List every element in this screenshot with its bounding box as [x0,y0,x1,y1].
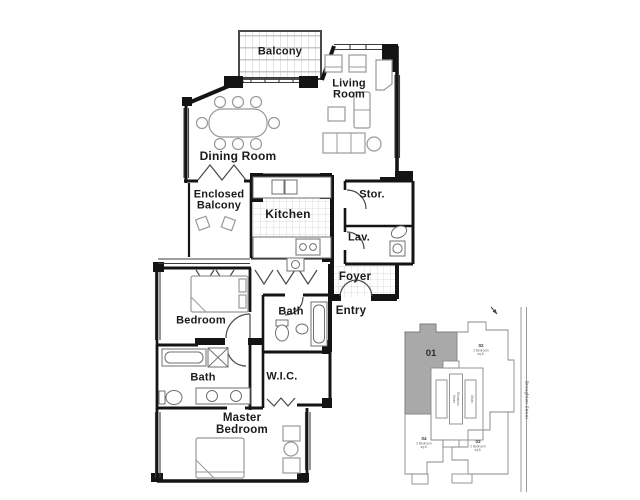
key-plan-unit-03-line2: sq.ft. [475,448,482,452]
furniture-dining [197,97,280,150]
room-label-enclosed-balcony: Enclosed Balcony [182,190,256,213]
room-label-balcony: Balcony [258,46,302,57]
key-plan-core-label-1: Stairs [452,395,456,404]
key-plan-unit-04-label: 04 [421,436,427,441]
key-plan-unit-02-label: 02 [478,343,484,348]
key-plan-unit-03-label: 03 [475,439,481,444]
room-label-bath-ensuite: Bath [278,306,303,317]
key-plan-unit-04-line2: sq.ft. [421,445,428,449]
furniture-living [323,55,392,153]
room-label-storage: Stor. [359,189,384,200]
room-label-master-bedroom: Master Bedroom [201,413,283,437]
key-plan-unit-02-line2: sq.ft. [478,352,485,356]
room-label-kitchen: Kitchen [265,208,310,220]
north-arrow-icon [491,307,497,314]
fixtures-lav [389,224,408,256]
room-label-dining-room: Dining Room [200,150,277,162]
room-label-living-room: Living Room [325,79,373,102]
floor-plan-image: 01 02 2 Bedroom sq.ft. 03 2 Bedroom sq.f… [0,0,640,500]
room-label-bedroom: Bedroom [176,315,226,326]
room-label-entry: Entry [336,306,366,318]
floor-plan-drawing: 01 02 2 Bedroom sq.ft. 03 2 Bedroom sq.f… [0,0,640,500]
furniture-bedroom [191,276,248,312]
key-plan: 01 02 2 Bedroom sq.ft. 03 2 Bedroom sq.f… [405,307,530,492]
room-label-bath-main: Bath [190,372,215,383]
key-plan-core-label-2: Elevators [456,392,460,406]
furniture-enclosed-balcony [196,216,236,230]
key-plan-core-label-3: Stairs [470,395,474,404]
room-label-lavatory: Lav. [348,232,370,243]
room-label-foyer: Foyer [339,272,371,284]
room-label-wic: W.I.C. [266,371,297,382]
street-label: Broughton Street [525,381,530,419]
key-plan-unit-01-label: 01 [426,348,437,359]
